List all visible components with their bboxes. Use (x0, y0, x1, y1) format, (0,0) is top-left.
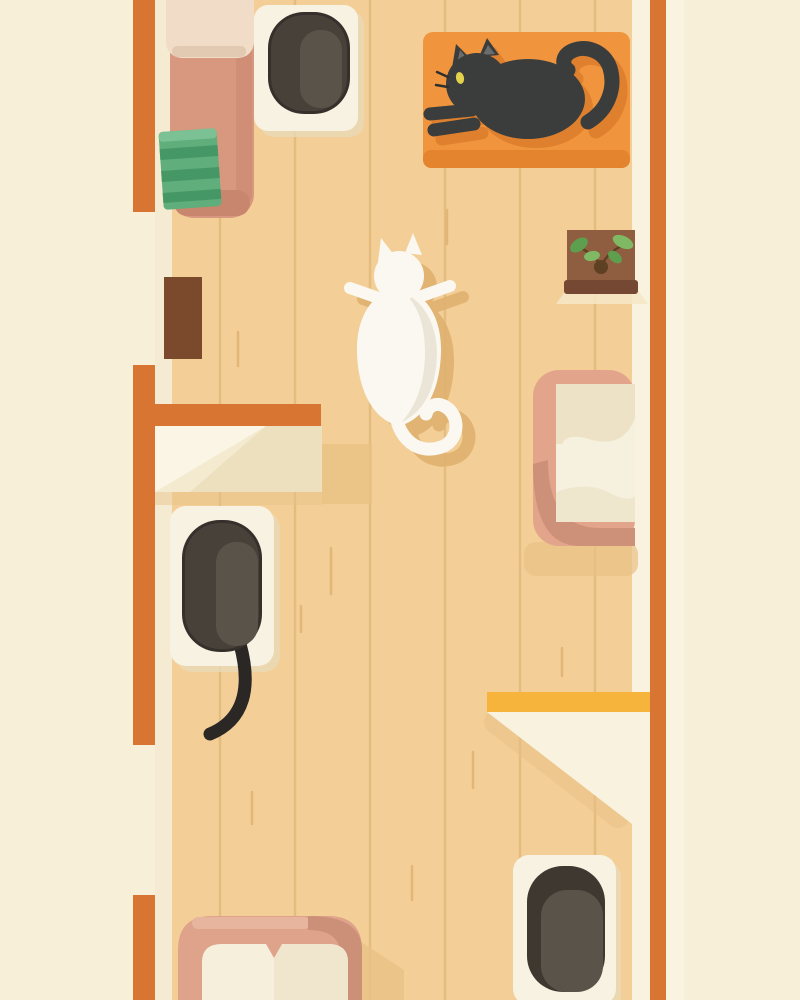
shelf-floor-shadow (322, 444, 372, 504)
potted-plant (556, 230, 648, 304)
bed-cushion-fold (172, 46, 246, 57)
dark-cushion-highlight (541, 890, 603, 992)
wall-left-top (133, 0, 155, 212)
bed-pillow (274, 944, 348, 1000)
litter-mat-top (254, 5, 364, 137)
wall-left-bottom (133, 895, 155, 1000)
wall-partition (133, 404, 321, 426)
shelf-under-shadow (155, 492, 322, 505)
outer-wall-strip-right (666, 0, 684, 1000)
rug-shadow-band (423, 150, 630, 168)
green-towels (158, 128, 221, 210)
bed-frame-highlight (192, 917, 310, 929)
cat-room-scene (0, 0, 800, 1000)
white-cat-head (374, 251, 424, 301)
planter-rim (564, 280, 638, 294)
black-cat-head (446, 53, 508, 115)
dark-cushion-highlight (300, 30, 342, 108)
door-mat-brown (164, 277, 202, 359)
wall-right (650, 0, 666, 1000)
pet-bed-right (524, 370, 638, 576)
plant-soil (594, 260, 608, 274)
sleeping-dark-cat-highlight (216, 542, 258, 646)
bed-floor-shadow (524, 542, 638, 576)
bed-pillow (556, 384, 635, 444)
wall-shelf-yellow (487, 692, 650, 712)
litter-mat-bottom (513, 855, 621, 1000)
room-illustration (0, 0, 800, 1000)
